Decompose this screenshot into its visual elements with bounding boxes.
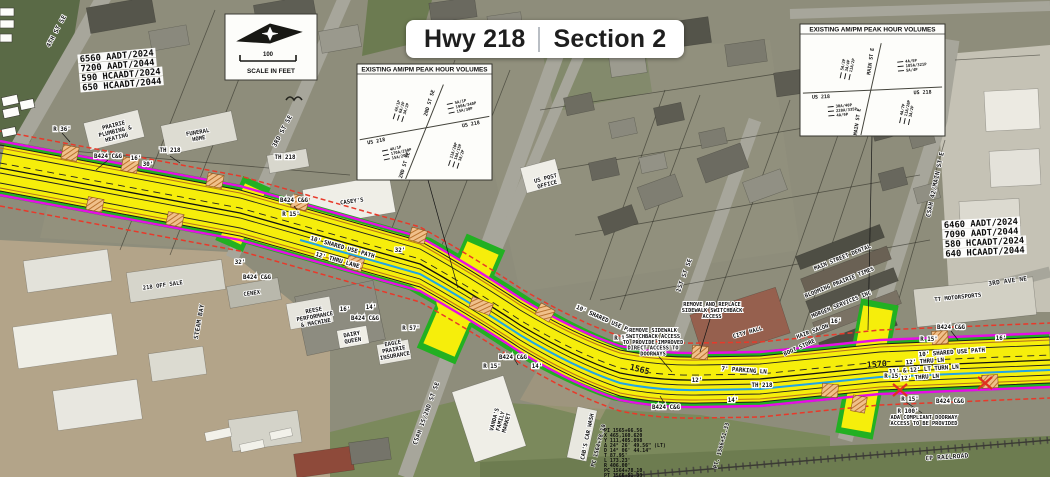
label-callout: B424 C&G: [936, 399, 964, 405]
svg-text:B424 C&G: B424 C&G: [936, 399, 964, 405]
svg-text:32': 32': [395, 248, 405, 254]
driveway-hatch: [851, 395, 868, 413]
label-callout: B424 C&G: [499, 355, 527, 361]
label-callout: R 15': [920, 337, 937, 343]
label-callout: B424 C&G: [243, 275, 271, 281]
scale-distance: 100: [263, 52, 274, 58]
label-callout: R 57': [402, 326, 419, 332]
label-callout: B424 C&G: [351, 316, 379, 322]
label-callout: TH 218: [275, 155, 296, 161]
label-callout: B424 C&G: [94, 154, 122, 160]
svg-text:B424 C&G: B424 C&G: [351, 316, 379, 322]
driveway-hatch: [206, 173, 224, 189]
label-callout: R 15': [282, 212, 299, 218]
volume-box-road-name: US 218: [913, 90, 931, 97]
plan-sheet: 4TH ST SE3RD ST SESTEAM BAYCSAH 15/2ND S…: [0, 0, 1050, 477]
volume-box-road-name: US 218: [812, 94, 830, 101]
label-callout: B424 C&G: [652, 405, 680, 411]
aadt-label-block-0: 6560 AADT/20247200 AADT/2044590 HCAADT/2…: [77, 47, 164, 94]
label-callout: B424 C&G: [280, 198, 308, 204]
scale-caption: SCALE IN FEET: [247, 68, 295, 75]
label-callout: R 36': [53, 127, 70, 133]
svg-text:PT 1566+51.33: PT 1566+51.33: [604, 473, 642, 477]
svg-text:R 15': R 15': [483, 364, 500, 370]
label-callout: 16': [340, 307, 350, 313]
volume-box-0: EXISTING AM/PM PEAK HOUR VOLUMESUS 218US…: [357, 64, 492, 180]
label-callout: 12': [692, 378, 702, 384]
driveway-hatch: [691, 345, 708, 360]
svg-text:30': 30': [143, 162, 153, 168]
label-callout: 30': [143, 162, 153, 168]
svg-text:B424 C&G: B424 C&G: [652, 405, 680, 411]
driveway-hatch: [61, 145, 79, 162]
driveway-hatch: [821, 383, 838, 397]
label-callout: 32': [235, 260, 245, 266]
label-callout: R 15': [483, 364, 500, 370]
svg-text:14': 14': [366, 305, 376, 311]
svg-text:14': 14': [728, 398, 738, 404]
title-route: Hwy 218: [424, 25, 525, 54]
svg-text:32': 32': [235, 260, 245, 266]
volume-box-header: EXISTING AM/PM PEAK HOUR VOLUMES: [361, 67, 488, 74]
note-ada-doorway: ADA COMPLIANT DOORWAYACCESS TO BE PROVID…: [891, 415, 959, 427]
svg-text:R 15': R 15': [901, 397, 918, 403]
svg-text:ADA COMPLIANT DOORWAYACCESS TO: ADA COMPLIANT DOORWAYACCESS TO BE PROVID…: [891, 415, 959, 427]
svg-text:B424 C&G: B424 C&G: [499, 355, 527, 361]
svg-text:TH 218: TH 218: [160, 148, 181, 154]
station-1570: 1570: [866, 358, 887, 369]
driveway-hatch: [166, 212, 184, 228]
svg-text:R 36': R 36': [53, 127, 70, 133]
label-callout: 14': [366, 305, 376, 311]
label-callout: B424 C&G: [937, 325, 965, 331]
svg-text:R 15': R 15': [282, 212, 299, 218]
label-callout: R 15': [884, 374, 901, 380]
svg-text:14': 14': [532, 364, 542, 370]
svg-text:R 57': R 57': [402, 326, 419, 332]
svg-text:16': 16': [340, 307, 350, 313]
label-callout: R 15': [901, 397, 918, 403]
svg-text:16': 16': [996, 336, 1006, 342]
sheet-title: Hwy 218 Section 2: [406, 20, 684, 58]
label-callout: 14': [532, 364, 542, 370]
svg-text:B424 C&G: B424 C&G: [243, 275, 271, 281]
label-callout: 16': [996, 336, 1006, 342]
aadt-label-block-1: 6460 AADT/20247090 AADT/2044580 HCAADT/2…: [942, 216, 1027, 260]
svg-text:B424 C&G: B424 C&G: [94, 154, 122, 160]
svg-text:TH 218: TH 218: [752, 383, 773, 389]
title-divider: [538, 27, 540, 52]
svg-text:1570: 1570: [866, 358, 887, 369]
svg-text:R 15': R 15': [920, 337, 937, 343]
svg-text:B424 C&G: B424 C&G: [280, 198, 308, 204]
volume-box-header: EXISTING AM/PM PEAK HOUR VOLUMES: [809, 27, 936, 34]
label-callout: 16': [131, 156, 141, 162]
svg-text:R 15': R 15': [884, 374, 901, 380]
label-callout: TH 218: [160, 148, 181, 154]
label-callout: TH 218: [752, 383, 773, 389]
volume-box-1: EXISTING AM/PM PEAK HOUR VOLUMESUS 218US…: [800, 24, 945, 136]
svg-text:16': 16': [131, 156, 141, 162]
svg-text:TH 218: TH 218: [275, 155, 296, 161]
label-callout: 32': [395, 248, 405, 254]
svg-text:B424 C&G: B424 C&G: [937, 325, 965, 331]
site-plan-map: 4TH ST SE3RD ST SESTEAM BAYCSAH 15/2ND S…: [0, 0, 1050, 477]
label-callout: 14': [728, 398, 738, 404]
driveway-hatch: [86, 197, 104, 213]
svg-text:16': 16': [831, 319, 841, 325]
title-section: Section 2: [553, 25, 666, 54]
svg-text:12': 12': [692, 378, 702, 384]
label-callout: 16': [831, 319, 841, 325]
